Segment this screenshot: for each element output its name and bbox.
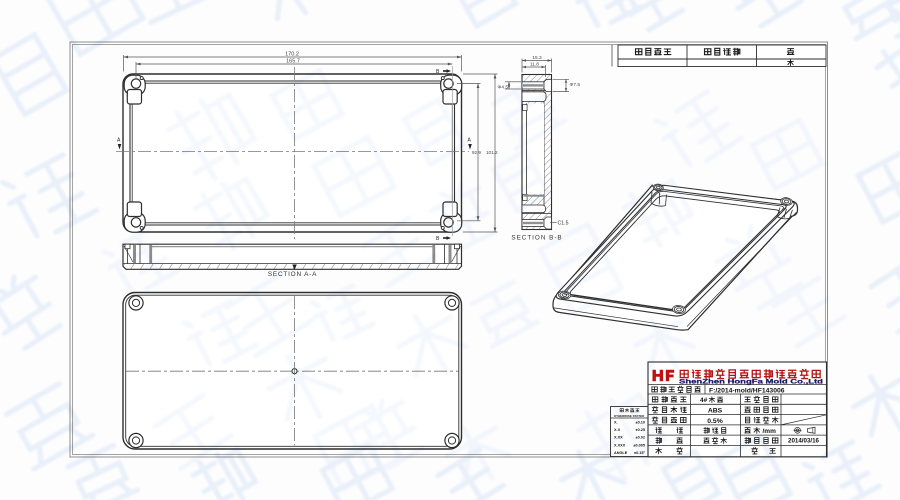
svg-text:ShenZhen HongFa Mold Co.,Ltd: ShenZhen HongFa Mold Co.,Ltd (679, 379, 823, 386)
svg-text:Φ4.5: Φ4.5 (498, 84, 509, 90)
svg-text:X.X: X.X (614, 428, 621, 432)
svg-text:ABS: ABS (708, 408, 723, 415)
svg-text:165.7: 165.7 (286, 59, 300, 65)
svg-text:/mm: /mm (763, 428, 777, 435)
svg-text:C1.5: C1.5 (558, 221, 569, 227)
svg-text:Φ7.5: Φ7.5 (570, 82, 581, 88)
svg-text:X.XXX: X.XXX (614, 443, 626, 447)
svg-text:11.8: 11.8 (530, 61, 539, 67)
svg-text:F:/2014-mold/HF143006: F:/2014-mold/HF143006 (709, 387, 785, 394)
svg-text:X.: X. (614, 421, 618, 425)
svg-text:170.2: 170.2 (285, 52, 299, 58)
svg-text:4#: 4# (700, 397, 708, 404)
svg-text:15.3: 15.3 (532, 55, 542, 61)
svg-text:101.2: 101.2 (486, 150, 498, 155)
svg-text:±0.02: ±0.02 (636, 436, 645, 440)
svg-text:ANGLE: ANGLE (614, 451, 628, 455)
svg-text:0.5%: 0.5% (707, 418, 723, 425)
svg-text:2014/03/16: 2014/03/16 (788, 438, 820, 445)
svg-text:92.9: 92.9 (472, 150, 481, 155)
